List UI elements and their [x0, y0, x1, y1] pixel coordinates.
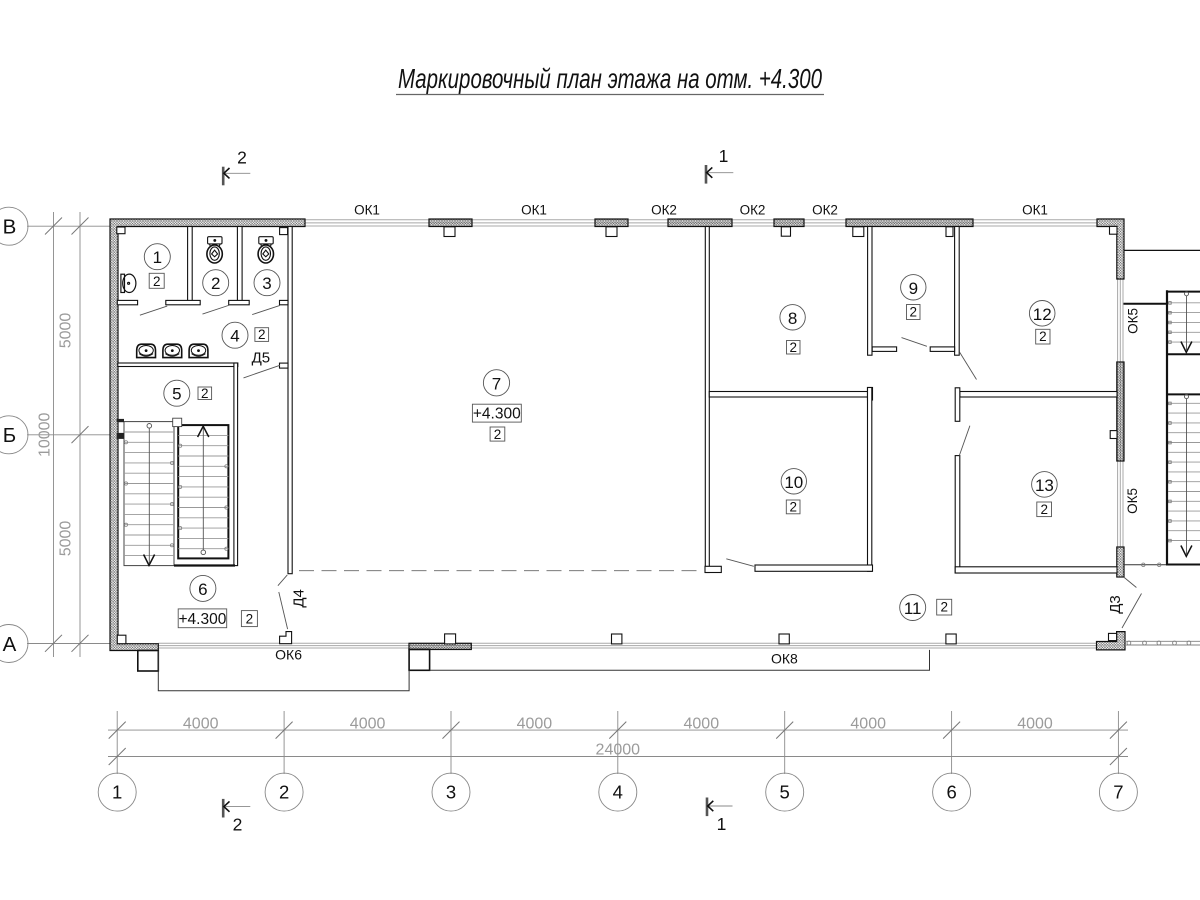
svg-text:ОК8: ОК8	[771, 651, 798, 667]
svg-text:2: 2	[790, 340, 798, 355]
svg-text:4000: 4000	[684, 716, 720, 733]
svg-text:ОК2: ОК2	[651, 203, 677, 218]
svg-text:Д3: Д3	[1107, 595, 1124, 614]
svg-text:7: 7	[1113, 782, 1123, 803]
svg-text:2: 2	[153, 274, 161, 289]
svg-text:ОК1: ОК1	[521, 203, 547, 218]
svg-text:3: 3	[446, 782, 456, 803]
svg-text:В: В	[3, 216, 17, 239]
svg-text:5: 5	[780, 782, 790, 803]
svg-text:2: 2	[258, 327, 266, 342]
svg-text:5000: 5000	[58, 313, 75, 349]
svg-text:ОК2: ОК2	[740, 203, 766, 218]
svg-text:2: 2	[201, 386, 209, 401]
svg-text:+4.300: +4.300	[473, 406, 521, 423]
svg-text:4000: 4000	[850, 716, 886, 733]
svg-text:2: 2	[940, 600, 948, 615]
svg-text:А: А	[3, 633, 17, 656]
svg-text:ОК5: ОК5	[1126, 308, 1141, 334]
svg-text:2: 2	[211, 274, 220, 293]
svg-text:1: 1	[717, 814, 727, 834]
svg-text:2: 2	[1039, 329, 1047, 344]
svg-text:12: 12	[1033, 305, 1052, 324]
svg-text:9: 9	[909, 279, 918, 298]
svg-text:2: 2	[279, 782, 289, 803]
svg-text:13: 13	[1035, 476, 1054, 495]
svg-text:1: 1	[719, 146, 729, 166]
svg-text:7: 7	[492, 374, 501, 393]
svg-text:8: 8	[788, 309, 797, 328]
svg-text:5: 5	[172, 385, 181, 404]
svg-text:3: 3	[262, 274, 271, 293]
svg-text:4000: 4000	[183, 716, 219, 733]
svg-text:24000: 24000	[596, 742, 641, 759]
svg-text:2: 2	[246, 611, 254, 626]
svg-text:4: 4	[230, 327, 239, 346]
svg-text:Маркировочный план этажа на от: Маркировочный план этажа на отм. +4.300	[398, 63, 823, 94]
svg-text:2: 2	[237, 148, 247, 168]
svg-text:6: 6	[198, 580, 207, 599]
svg-text:ОК1: ОК1	[354, 203, 380, 218]
svg-text:10000: 10000	[37, 412, 54, 457]
svg-text:4: 4	[613, 782, 623, 803]
svg-text:4000: 4000	[517, 716, 553, 733]
svg-text:ОК6: ОК6	[275, 646, 302, 662]
svg-text:ОК5: ОК5	[1125, 488, 1140, 514]
svg-text:Д5: Д5	[252, 349, 271, 366]
svg-text:2: 2	[910, 305, 918, 320]
svg-text:ОК2: ОК2	[812, 203, 838, 218]
svg-text:1: 1	[112, 782, 122, 803]
svg-text:2: 2	[1040, 502, 1048, 517]
svg-text:2: 2	[233, 815, 243, 835]
svg-text:2: 2	[494, 427, 502, 442]
svg-text:6: 6	[946, 782, 956, 803]
svg-text:Б: Б	[3, 424, 16, 447]
svg-text:4000: 4000	[350, 716, 386, 733]
svg-text:1: 1	[153, 248, 162, 267]
svg-text:10: 10	[784, 473, 803, 492]
svg-text:Д4: Д4	[291, 589, 308, 608]
svg-text:+4.300: +4.300	[178, 611, 226, 628]
svg-text:11: 11	[904, 599, 922, 618]
svg-text:4000: 4000	[1017, 716, 1053, 733]
svg-text:5000: 5000	[58, 521, 75, 557]
svg-text:2: 2	[789, 499, 797, 514]
svg-text:ОК1: ОК1	[1022, 203, 1048, 218]
